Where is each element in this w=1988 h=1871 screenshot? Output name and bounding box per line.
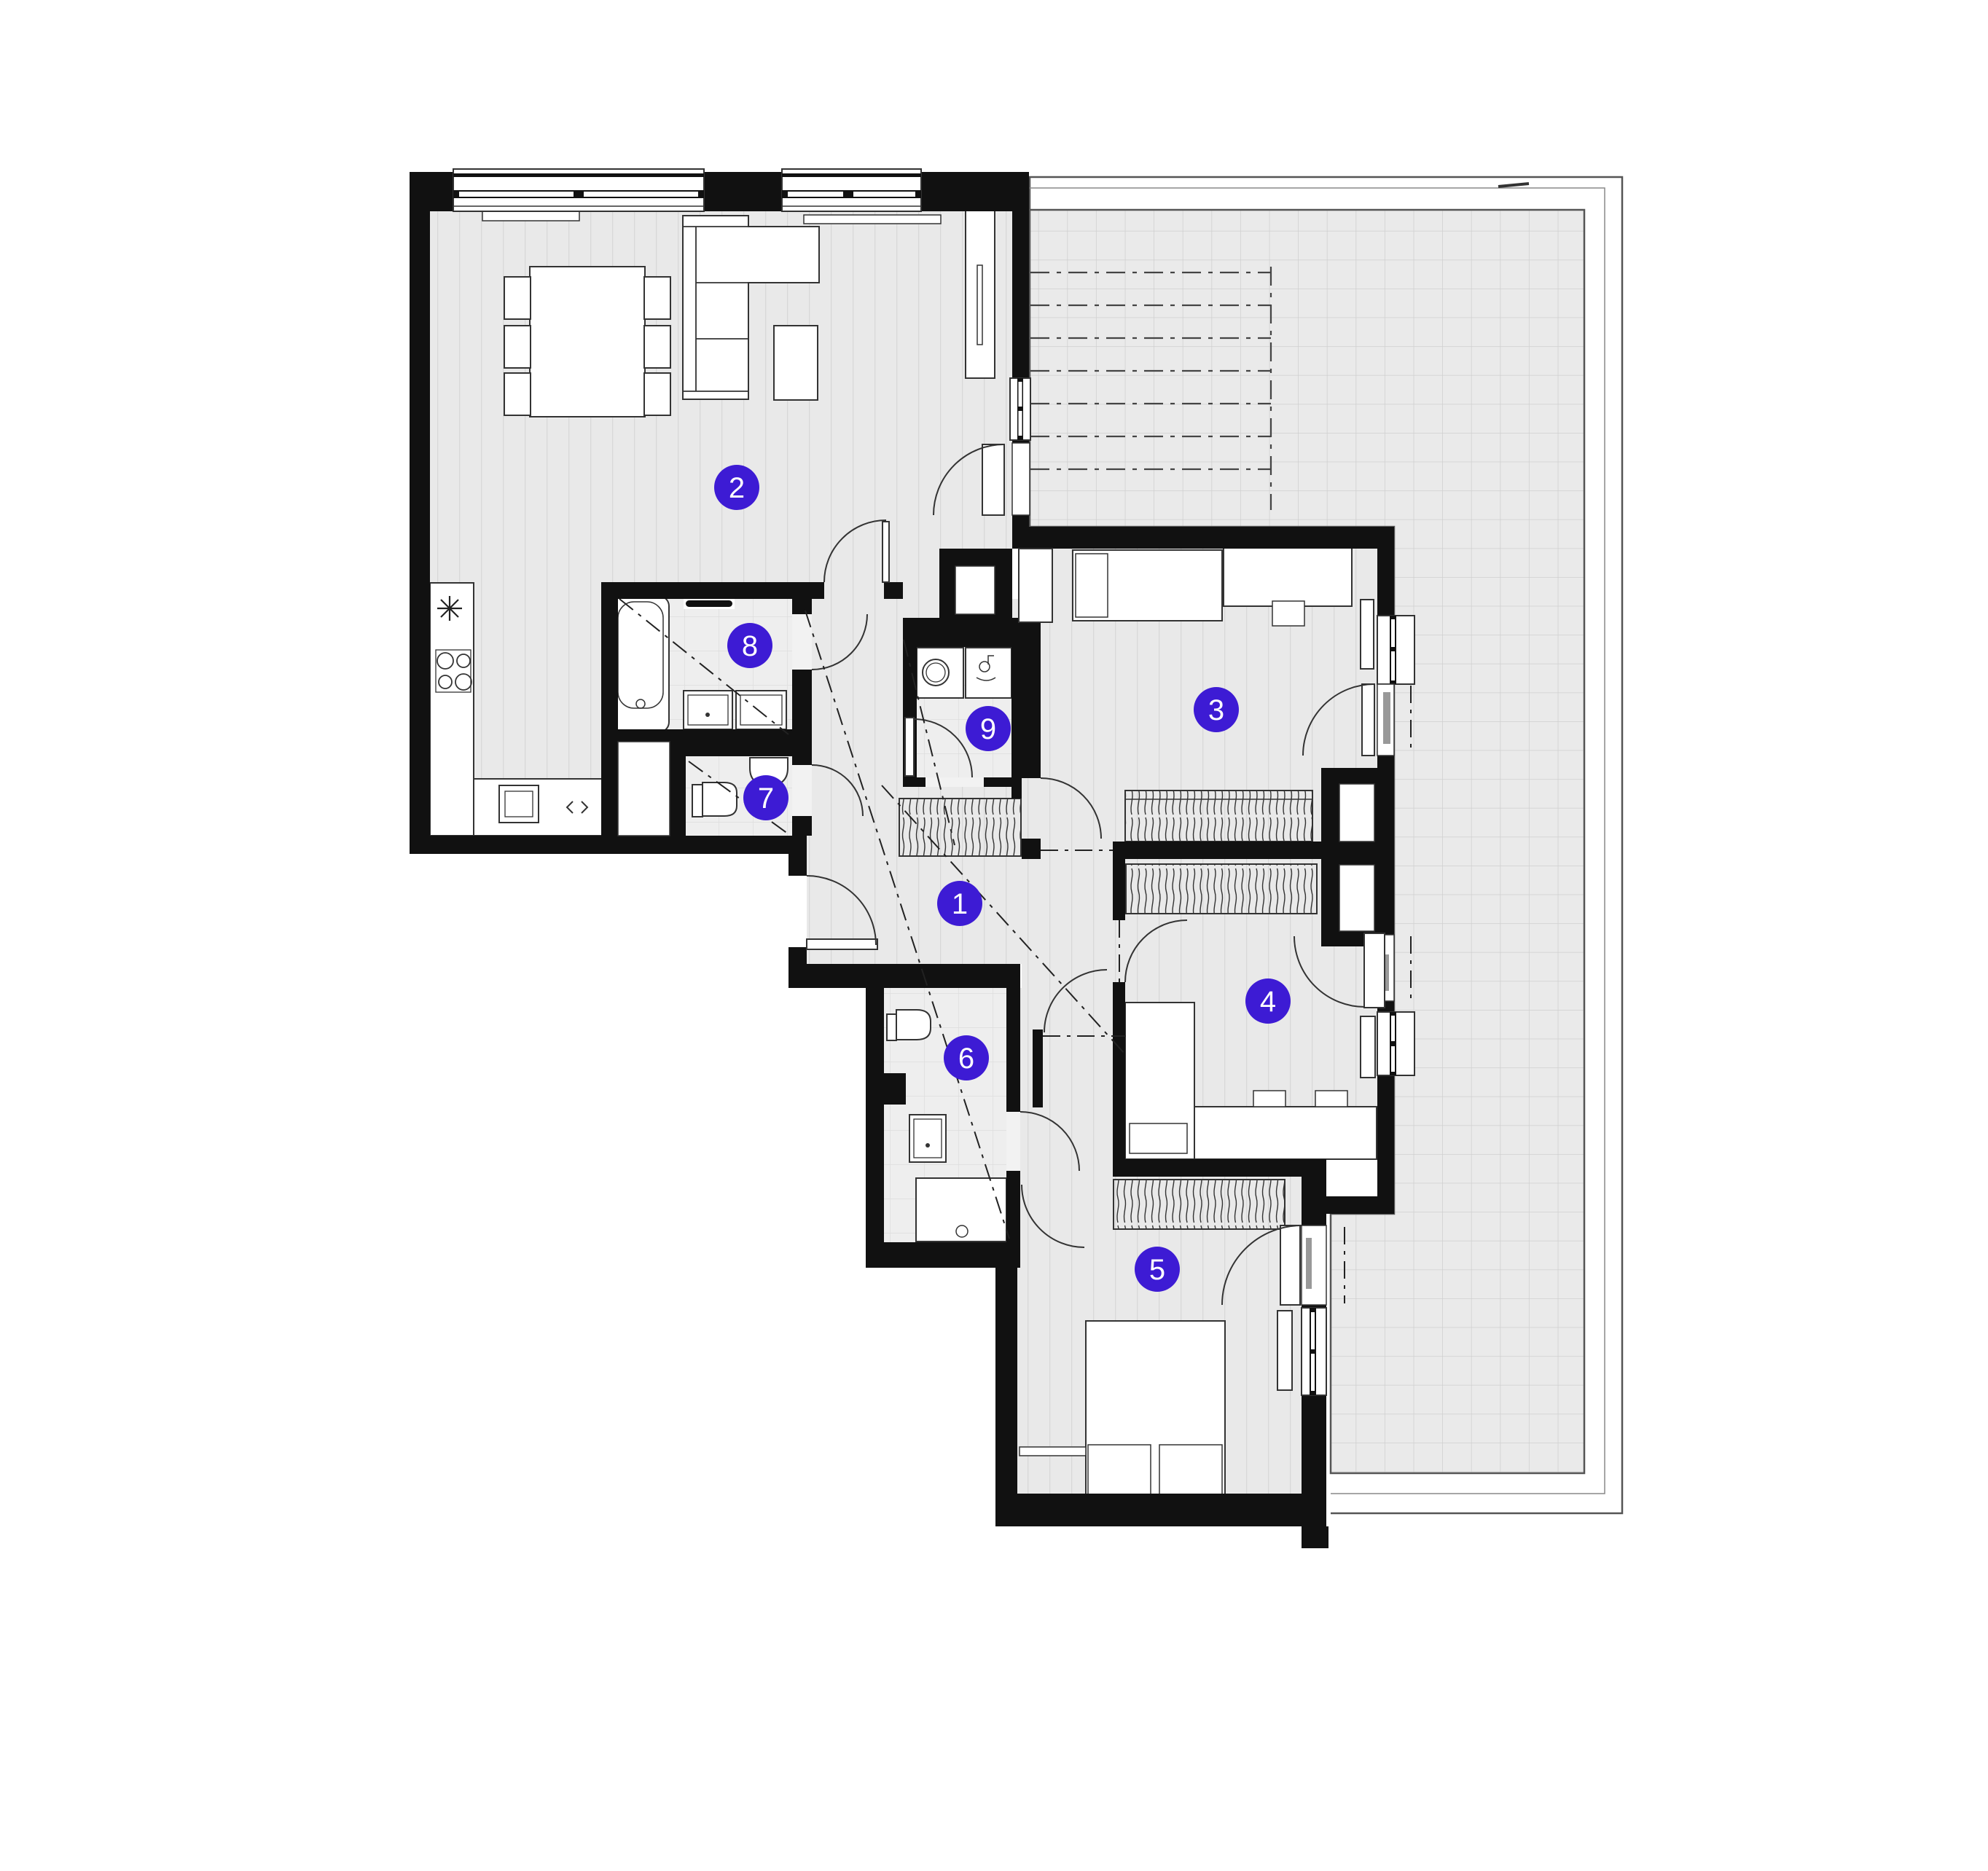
svg-text:9: 9 — [980, 713, 996, 745]
svg-text:1: 1 — [952, 888, 968, 920]
svg-text:3: 3 — [1208, 694, 1224, 726]
svg-text:5: 5 — [1149, 1254, 1165, 1286]
svg-text:8: 8 — [742, 630, 758, 662]
svg-text:7: 7 — [758, 782, 774, 815]
svg-text:2: 2 — [729, 472, 745, 504]
svg-text:4: 4 — [1260, 986, 1276, 1018]
svg-text:6: 6 — [958, 1043, 974, 1075]
